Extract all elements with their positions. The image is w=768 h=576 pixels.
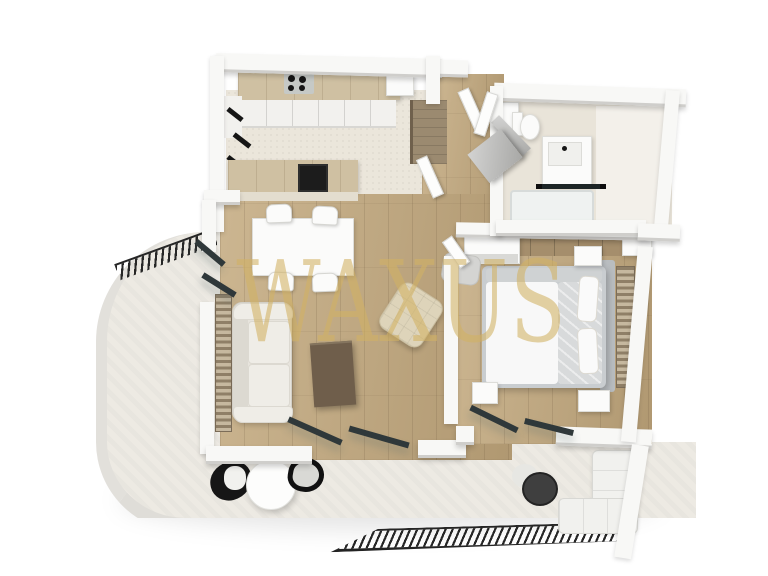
toilet-bowl bbox=[520, 114, 540, 140]
sofa-armrest bbox=[233, 406, 293, 423]
island-sink bbox=[298, 164, 328, 192]
burner-icon bbox=[288, 85, 294, 91]
sofa-cushion bbox=[248, 364, 290, 407]
wall-bathroom-south bbox=[496, 220, 646, 236]
burner-icon bbox=[299, 76, 306, 83]
bedside-bench bbox=[472, 382, 498, 404]
island-front bbox=[228, 192, 358, 201]
faucet-icon bbox=[562, 146, 567, 151]
nightstand bbox=[574, 246, 602, 266]
bed-pillow bbox=[576, 275, 599, 322]
terrace-side-table bbox=[522, 472, 558, 506]
dining-chair bbox=[312, 205, 339, 225]
slat-panel-living bbox=[215, 294, 232, 432]
tall-wood-cabinet bbox=[410, 100, 447, 164]
floor-plan-render: WAXUS bbox=[0, 0, 768, 576]
watermark: WAXUS bbox=[236, 237, 567, 368]
wall-kitchen-east bbox=[426, 56, 440, 104]
burner-icon bbox=[299, 85, 305, 91]
bed-pillow bbox=[577, 328, 599, 375]
burner-icon bbox=[288, 75, 295, 82]
terrace-chair-seat bbox=[224, 466, 246, 490]
kitchen-island bbox=[228, 160, 358, 192]
wall-living-west-lower bbox=[200, 302, 214, 454]
dining-chair bbox=[266, 204, 293, 224]
wall-living-south bbox=[206, 446, 312, 464]
shower-glass bbox=[536, 184, 606, 189]
wall-bedroom-south-a bbox=[456, 426, 474, 445]
wall-closet-east bbox=[638, 223, 681, 241]
nightstand bbox=[578, 390, 610, 412]
kitchen-cabinets bbox=[240, 100, 396, 128]
